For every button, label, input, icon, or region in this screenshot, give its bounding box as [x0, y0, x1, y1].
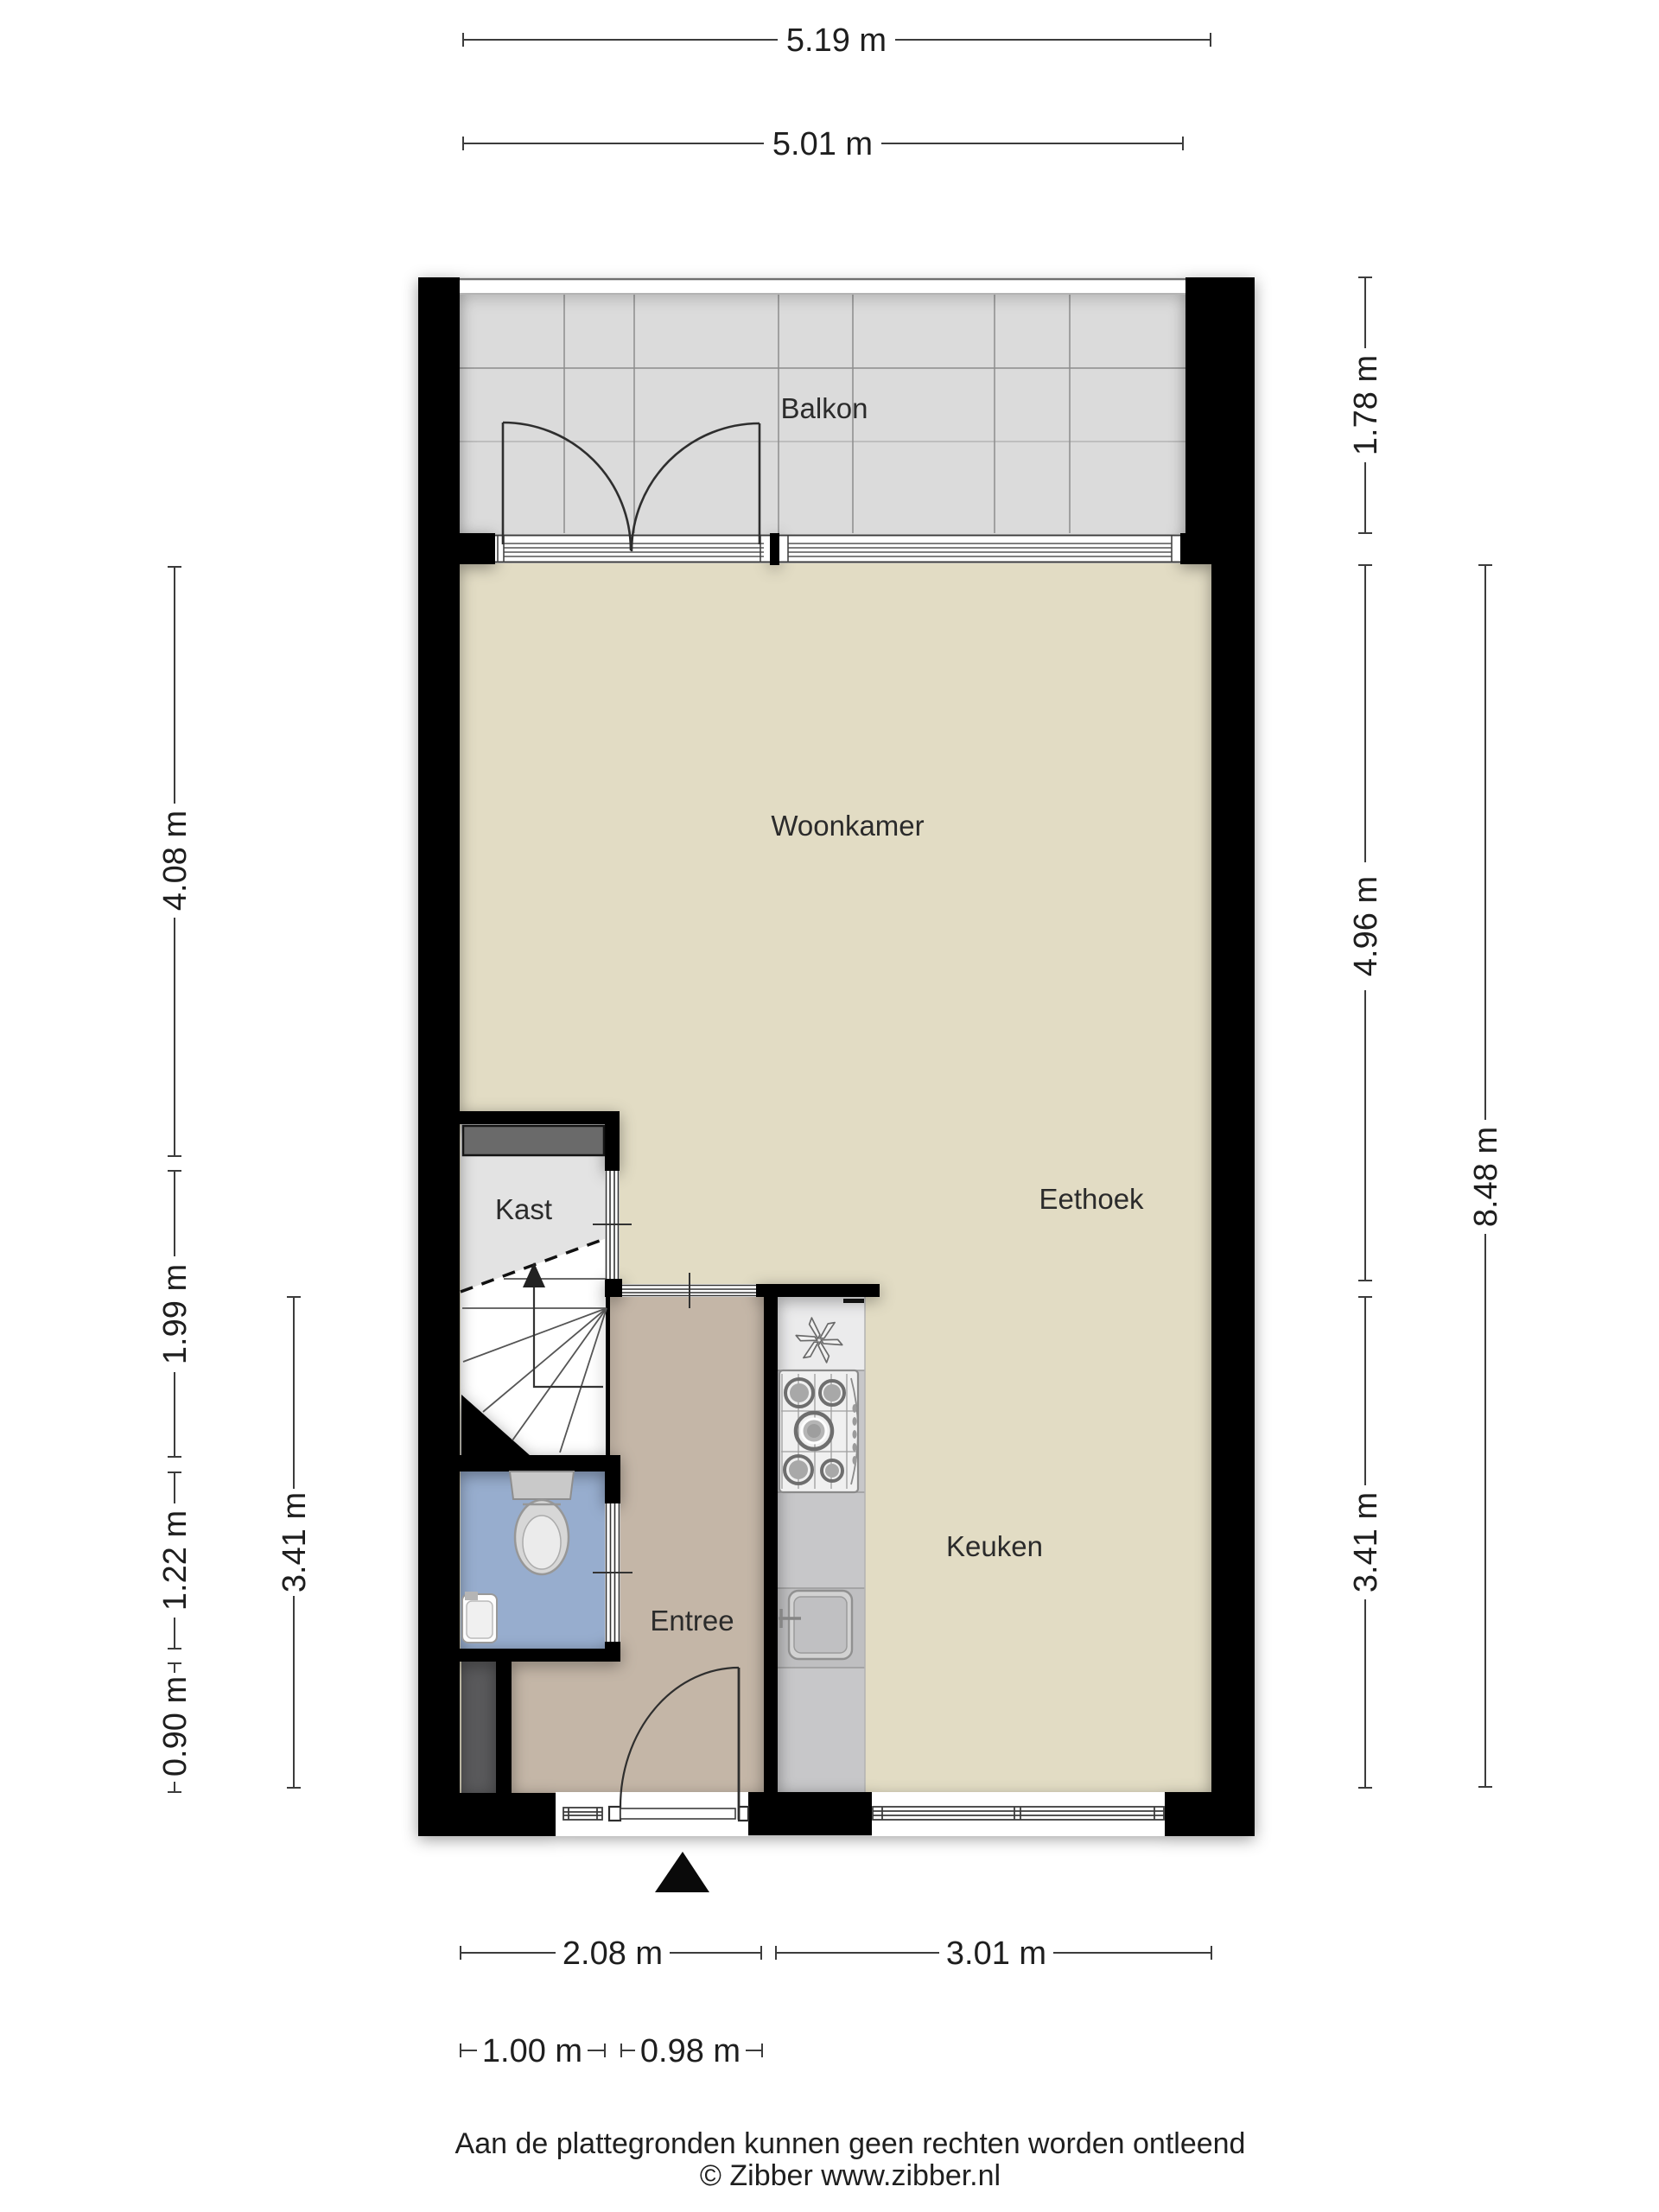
svg-text:4.08 m: 4.08 m [157, 810, 194, 911]
svg-text:1.22 m: 1.22 m [157, 1510, 194, 1611]
svg-text:Kast: Kast [495, 1193, 552, 1225]
svg-text:Keuken: Keuken [946, 1530, 1043, 1562]
svg-text:5.01 m: 5.01 m [772, 126, 873, 162]
svg-text:1.78 m: 1.78 m [1348, 355, 1384, 455]
svg-text:Balkon: Balkon [781, 392, 868, 424]
svg-text:© Zibber www.zibber.nl: © Zibber www.zibber.nl [700, 2159, 1001, 2192]
svg-text:Woonkamer: Woonkamer [771, 810, 924, 842]
svg-text:0.90 m: 0.90 m [157, 1676, 194, 1777]
svg-text:4.96 m: 4.96 m [1348, 876, 1384, 976]
svg-text:Eethoek: Eethoek [1039, 1183, 1144, 1215]
svg-text:3.01 m: 3.01 m [946, 1935, 1046, 1972]
svg-text:1.00 m: 1.00 m [482, 2033, 582, 2069]
svg-text:8.48 m: 8.48 m [1468, 1127, 1504, 1227]
svg-text:5.19 m: 5.19 m [786, 22, 887, 59]
svg-text:0.98 m: 0.98 m [640, 2033, 741, 2069]
svg-text:2.08 m: 2.08 m [563, 1935, 663, 1972]
svg-text:3.41 m: 3.41 m [1348, 1492, 1384, 1592]
svg-text:Aan de plattegronden kunnen ge: Aan de plattegronden kunnen geen rechten… [455, 2127, 1246, 2160]
svg-text:Entree: Entree [650, 1605, 734, 1637]
svg-text:3.41 m: 3.41 m [276, 1492, 313, 1592]
svg-text:1.99 m: 1.99 m [157, 1264, 194, 1364]
